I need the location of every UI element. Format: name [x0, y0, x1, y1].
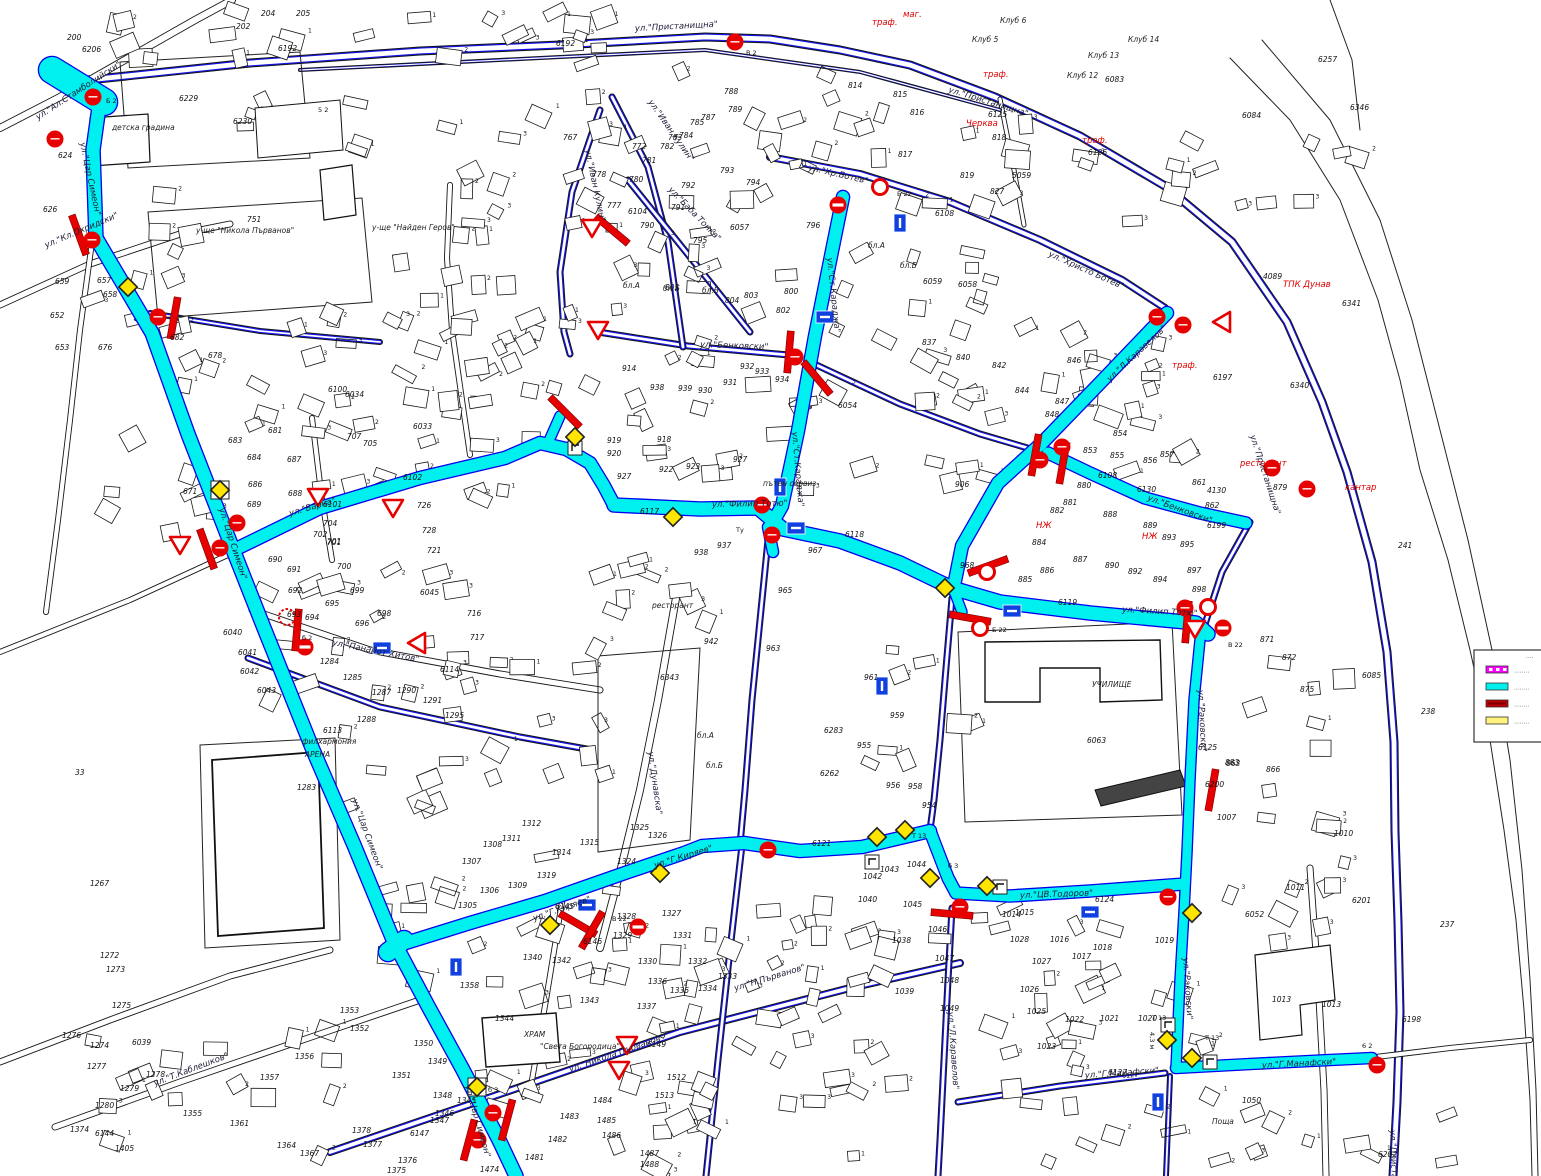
parcel-number: 1482 — [548, 1135, 567, 1144]
house-number: 2 — [487, 275, 491, 282]
building-footprint — [1324, 878, 1340, 894]
house-number: 3 — [811, 1033, 815, 1040]
house-number: 1 — [936, 657, 940, 664]
parcel-number: 892 — [1128, 567, 1143, 576]
building-footprint — [928, 933, 951, 944]
house-number: 3 — [501, 10, 505, 17]
prohibition-sign-icon — [980, 565, 995, 580]
parcel-number: 1314 — [552, 848, 571, 857]
house-number: 3 — [1158, 414, 1162, 421]
parcel-number: 887 — [1073, 555, 1088, 564]
parcel-number: 1405 — [115, 1144, 134, 1153]
one-way-arrow-icon — [1007, 610, 1017, 612]
parcel-number: 6130 — [1137, 485, 1156, 494]
parcel-number: 700 — [337, 562, 352, 571]
house-number: 1 — [649, 556, 653, 563]
parcel-number: 6198 — [1402, 1015, 1421, 1024]
parcel-number: 882 — [1050, 506, 1065, 515]
house-number: 3 — [1287, 934, 1291, 941]
house-number: 3 — [545, 990, 549, 997]
parcel-number: 1352 — [350, 1024, 369, 1033]
house-number: 3 — [827, 1094, 831, 1101]
poi-label: бл.Б — [706, 761, 723, 770]
house-number: 3 — [609, 121, 613, 128]
parcel-number: 1367 — [300, 1149, 319, 1158]
parcel-number: 6346 — [1350, 103, 1369, 112]
building-footprint — [1020, 1098, 1042, 1110]
building-footprint — [251, 1088, 276, 1106]
parcel-number: 6197 — [1213, 373, 1232, 382]
house-number: 1 — [1062, 372, 1066, 379]
parcel-number: 1038 — [892, 936, 911, 945]
parcel-number: 846 — [1067, 356, 1082, 365]
parcel-number: 937 — [717, 541, 732, 550]
parcel-number: 1311 — [502, 834, 521, 843]
house-number: 2 — [678, 355, 682, 362]
parcel-number: 6083 — [1105, 75, 1124, 84]
parcel-number: 842 — [992, 361, 1007, 370]
house-number: 1 — [440, 293, 444, 300]
parcel-number: 837 — [922, 338, 937, 347]
house-number: 3 — [604, 717, 608, 724]
sign-annotation-text: 6127 — [1122, 1071, 1139, 1080]
parcel-number: 695 — [325, 599, 340, 608]
poi-label: бл.Б — [900, 261, 917, 270]
parcel-number: 1327 — [662, 909, 681, 918]
parcel-number: 1358 — [460, 981, 479, 990]
building-footprint — [908, 299, 926, 316]
house-number: 2 — [909, 1076, 913, 1083]
house-number: 1 — [306, 1027, 310, 1034]
parcel-number: 1279 — [120, 1084, 139, 1093]
parcel-number: 857 — [1160, 450, 1175, 459]
house-number: 3 — [1342, 877, 1346, 884]
house-number: 3 — [799, 1094, 803, 1101]
building-footprint — [805, 966, 818, 983]
building-footprint — [1122, 215, 1142, 227]
parcel-number: 657 — [97, 276, 112, 285]
building-footprint — [946, 713, 972, 734]
house-number: 3 — [406, 311, 410, 318]
house-number: 1 — [517, 1069, 521, 1076]
building-footprint — [420, 293, 438, 307]
building-footprint — [886, 645, 899, 654]
parcel-number: 705 — [363, 439, 378, 448]
house-number: 3 — [721, 465, 725, 472]
parcel-number: 6041 — [238, 648, 257, 657]
parcel-number: 861 — [1192, 478, 1206, 487]
house-number: 2 — [1343, 818, 1347, 825]
parcel-number: 855 — [1110, 451, 1125, 460]
parcel-number: 6206 — [82, 45, 101, 54]
poi-label-red: траф. — [1082, 136, 1108, 146]
house-number: 3 — [816, 482, 820, 489]
house-number: 3 — [819, 398, 823, 405]
house-number: 2 — [631, 589, 635, 596]
house-number: 3 — [674, 1166, 678, 1173]
building-footprint — [149, 223, 170, 240]
parcel-number: 931 — [723, 378, 737, 387]
parcel-number: 653 — [55, 343, 70, 352]
house-number: 1 — [949, 197, 953, 204]
parcel-number: 6200 — [1205, 780, 1224, 789]
house-number: 3 — [536, 34, 540, 41]
parcel-number: 1039 — [895, 987, 914, 996]
parcel-number: 1486 — [602, 1131, 621, 1140]
parcel-number: 1361 — [230, 1119, 249, 1128]
house-number: 2 — [1159, 362, 1163, 369]
house-number: 2 — [343, 1083, 347, 1090]
parcel-number: 1307 — [462, 857, 481, 866]
house-number: 2 — [781, 960, 785, 967]
parcel-number: 1315 — [580, 838, 599, 847]
building-footprint — [366, 765, 386, 775]
parcel-number: 688 — [288, 489, 303, 498]
parcel-number: 1287 — [372, 688, 391, 697]
house-number: 3 — [1316, 194, 1320, 201]
parcel-number: 1290 — [397, 686, 416, 695]
parcel-number: 1274 — [90, 1041, 109, 1050]
poi-label: филхармония — [302, 737, 357, 746]
house-number: 1 — [304, 321, 308, 328]
house-number: 2 — [872, 1081, 876, 1088]
parcel-number: 693 — [287, 610, 302, 619]
house-number: 1 — [1328, 715, 1332, 722]
parcel-number: 6057 — [730, 223, 749, 232]
parcel-number: 678 — [208, 351, 223, 360]
building-footprint — [557, 995, 571, 1009]
cadastral-map-canvas[interactable]: 1121113323111121132122211133231212213113… — [0, 0, 1541, 1176]
building-footprint — [104, 486, 120, 498]
poi-label-red: траф. — [872, 18, 898, 28]
house-number: 1 — [624, 124, 628, 131]
parcel-number: 884 — [1032, 538, 1047, 547]
building-footprint — [586, 89, 601, 105]
parcel-number: 1045 — [903, 900, 922, 909]
parcel-number: 800 — [784, 287, 799, 296]
building-footprint — [168, 1092, 182, 1106]
one-way-arrow-icon — [899, 218, 901, 228]
parcel-number: 687 — [287, 455, 302, 464]
house-number: 1 — [512, 483, 516, 490]
building-footprint — [406, 883, 426, 903]
house-number: 2 — [343, 312, 347, 319]
parcel-number: 814 — [848, 81, 863, 90]
large-building — [320, 165, 356, 220]
house-number: 3 — [1157, 383, 1161, 390]
parcel-number: 658 — [103, 290, 118, 299]
parcel-number: 789 — [728, 105, 743, 114]
house-number: 1 — [619, 222, 623, 229]
parcel-number: 1010 — [1334, 829, 1353, 838]
house-number: 1 — [514, 736, 518, 743]
house-number: 3 — [634, 262, 638, 269]
one-way-arrow-icon — [1085, 911, 1095, 913]
house-number: 2 — [354, 724, 358, 731]
parcel-number: 894 — [1153, 575, 1168, 584]
house-number: 3 — [1261, 1148, 1265, 1155]
house-number: 3 — [1168, 334, 1172, 341]
building-footprint — [1062, 1040, 1076, 1049]
house-number: 3 — [1144, 215, 1148, 222]
building-footprint — [1063, 1097, 1079, 1116]
parcel-number: 1280 — [95, 1101, 114, 1110]
house-number: 3 — [608, 967, 612, 974]
parcel-number: 920 — [607, 449, 622, 458]
parcel-number: 704 — [323, 519, 338, 528]
poi-label: УЧИЛИЩЕ — [1092, 680, 1132, 689]
building-footprint — [392, 253, 409, 272]
parcel-number: 968 — [960, 561, 975, 570]
parcel-number: 885 — [1018, 575, 1033, 584]
parcel-number: 698 — [377, 609, 392, 618]
parcel-number: 702 — [313, 530, 328, 539]
building-footprint — [638, 263, 650, 276]
parcel-number: 690 — [268, 555, 283, 564]
house-number: 1 — [1035, 325, 1039, 332]
parcel-number: 5059 — [1012, 171, 1031, 180]
parcel-number: 795 — [693, 236, 708, 245]
one-way-arrow-icon — [791, 527, 801, 529]
sign-annotation-text: В 22 — [1228, 641, 1243, 649]
house-number: 1 — [332, 481, 336, 488]
stop-sign-text-mark — [1058, 446, 1067, 448]
parcel-number: 788 — [724, 87, 739, 96]
house-number: 1 — [1317, 1133, 1321, 1140]
parcel-number: 1512 — [667, 1073, 686, 1082]
parcel-number: 6192 — [278, 44, 297, 53]
house-number: 3 — [119, 1097, 123, 1104]
house-number: 3 — [1343, 810, 1347, 817]
parcel-number: 1484 — [593, 1096, 612, 1105]
stop-sign-text-mark — [216, 547, 225, 549]
parcel-number: 204 — [261, 9, 276, 18]
house-number: 1 — [246, 49, 250, 56]
parcel-number: 1023 — [1037, 1042, 1056, 1051]
street-name-label: ул."Пристанищна" — [1387, 1129, 1400, 1176]
house-number: 1 — [262, 421, 266, 428]
parcel-number: 6063 — [1087, 736, 1106, 745]
parcel-number: 1364 — [277, 1141, 296, 1150]
building-footprint — [439, 756, 463, 766]
building-footprint — [451, 318, 472, 335]
large-building — [212, 752, 324, 936]
legend-swatch-3 — [1486, 717, 1508, 724]
building-footprint — [756, 903, 781, 918]
building-footprint — [669, 583, 692, 599]
parcel-number: 624 — [58, 151, 73, 160]
sign-annotation-text: б 3 — [488, 1086, 498, 1094]
house-number: 3 — [475, 679, 479, 686]
parcel-number: 792 — [681, 181, 696, 190]
parcel-number: 1288 — [357, 715, 376, 724]
parcel-number: 1351 — [392, 1071, 411, 1080]
parcel-number: 6084 — [1242, 111, 1261, 120]
legend-item-label: ........ — [1514, 668, 1529, 675]
house-number: 3 — [667, 446, 671, 453]
parcel-number: 1042 — [863, 872, 882, 881]
building-footprint — [565, 216, 582, 231]
parcel-number: 6126 — [1088, 148, 1107, 157]
parcel-number: 238 — [1421, 707, 1436, 716]
building-footprint — [143, 52, 158, 65]
sign-annotation-text: 5 2 — [318, 106, 328, 114]
map-viewport[interactable]: 1121113323111121132122211133231212213113… — [0, 0, 1541, 1176]
parcel-number: 1295 — [445, 711, 464, 720]
parcel-number: 1273 — [106, 965, 125, 974]
parcel-number: 780 — [629, 175, 644, 184]
sign-annotation-text: 4,3 м — [1148, 1032, 1156, 1049]
parcel-number: 1047 — [935, 954, 954, 963]
parcel-number: 963 — [766, 644, 781, 653]
parcel-number: 6283 — [824, 726, 843, 735]
parcel-number: 1356 — [295, 1052, 314, 1061]
parcel-number: 626 — [43, 205, 58, 214]
building-footprint — [1310, 740, 1331, 756]
house-number: 3 — [1034, 114, 1038, 121]
sign-annotation-text: Т 13 — [1204, 1034, 1219, 1042]
house-number: 1 — [1101, 985, 1105, 992]
parcel-number: 938 — [694, 548, 709, 557]
building-footprint — [496, 276, 516, 296]
house-number: 1 — [888, 148, 892, 155]
sign-annotation-text: Ту — [735, 526, 744, 534]
parcel-number: 1306 — [480, 886, 499, 895]
parcel-number: 965 — [778, 586, 793, 595]
stop-sign-text-mark — [489, 1112, 498, 1114]
poi-label: бл.А — [868, 241, 885, 250]
one-way-arrow-icon — [881, 681, 883, 691]
house-number: 2 — [665, 566, 669, 573]
house-number: 1 — [308, 28, 312, 35]
parcel-number: 782 — [660, 142, 675, 151]
parcel-number: 1342 — [552, 956, 571, 965]
parcel-number: 6043 — [257, 686, 276, 695]
stop-sign-text-mark — [1036, 459, 1045, 461]
house-number: 1 — [980, 462, 984, 469]
parcel-number: 6146 — [583, 937, 602, 946]
parcel-number: 881 — [1063, 498, 1077, 507]
poi-label: Клуб 14 — [1128, 35, 1159, 44]
house-number: 3 — [943, 347, 947, 354]
house-number: 3 — [578, 318, 582, 325]
building-footprint — [730, 191, 754, 209]
parcel-number: 1308 — [483, 840, 502, 849]
parcel-number: 6119 — [1058, 598, 1077, 607]
house-number: 3 — [449, 570, 453, 577]
building-footprint — [701, 465, 720, 483]
legend-swatch-dash — [1496, 668, 1500, 671]
parcel-number: 1015 — [1015, 908, 1034, 917]
poi-label: у-ще "Никола Първанов" — [195, 226, 294, 235]
stop-sign-text-mark — [51, 138, 60, 140]
building-footprint — [878, 746, 898, 756]
house-number: 3 — [537, 1085, 541, 1092]
house-number: 1 — [707, 350, 711, 357]
sign-annotation-text: Т 13 — [911, 832, 926, 840]
parcel-number: 967 — [808, 546, 823, 555]
parcel-number: 895 — [1180, 540, 1195, 549]
parcel-number: 1326 — [648, 831, 667, 840]
stop-sign-text-mark — [1164, 896, 1173, 898]
parcel-number: 1305 — [458, 901, 477, 910]
house-number: 1 — [612, 769, 616, 776]
parcel-number: 1019 — [1155, 936, 1174, 945]
house-number: 2 — [504, 343, 508, 350]
parcel-number: 6257 — [1318, 55, 1337, 64]
parcel-number: 890 — [1105, 561, 1120, 570]
parcel-number: 872 — [1282, 653, 1297, 662]
parcel-number: 1022 — [1065, 1015, 1084, 1024]
house-number: 1 — [1196, 980, 1200, 987]
parcel-number: 6229 — [179, 94, 198, 103]
parcel-number: 692 — [288, 586, 303, 595]
parcel-number: 930 — [698, 386, 713, 395]
building-footprint — [475, 226, 489, 245]
house-number: 1 — [436, 438, 440, 445]
house-number: 3 — [645, 1070, 649, 1077]
parcel-number: 886 — [1040, 566, 1055, 575]
building-footprint — [915, 392, 935, 411]
stop-sign-text-mark — [1153, 316, 1162, 318]
sign-annotation-text: В 2 — [746, 49, 757, 57]
house-number: 1 — [720, 609, 724, 616]
building-footprint — [688, 244, 699, 262]
parcel-number: 1291 — [423, 696, 442, 705]
parcel-number: 1378 — [352, 1126, 371, 1135]
house-number: 1 — [536, 659, 540, 666]
house-number: 1 — [928, 298, 932, 305]
building-footprint — [627, 415, 641, 426]
house-number: 1 — [401, 923, 405, 930]
parcel-number: 1007 — [1217, 813, 1236, 822]
parcel-number: 932 — [740, 362, 755, 371]
sign-annotation-text: б 3 — [948, 862, 958, 870]
house-number: 2 — [402, 569, 406, 576]
poi-label: Клуб 12 — [1067, 71, 1098, 80]
parcel-number: 777 — [607, 201, 622, 210]
house-number: 3 — [1330, 919, 1334, 926]
stop-sign-text-mark — [768, 534, 777, 536]
parcel-number: 1026 — [1020, 985, 1039, 994]
building-footprint — [1071, 1065, 1084, 1077]
building-footprint — [470, 438, 494, 452]
building-footprint — [1262, 783, 1277, 798]
parcel-number: 1513 — [655, 1091, 674, 1100]
parcel-number: 1334 — [698, 984, 717, 993]
building-footprint — [660, 944, 681, 965]
house-number: 3 — [1018, 1048, 1022, 1055]
parcel-number: 1350 — [414, 1039, 433, 1048]
building-footprint — [461, 218, 485, 228]
prohibition-sign-icon — [1201, 600, 1216, 615]
parcel-number: 1343 — [580, 996, 599, 1005]
parcel-number: 6144 — [95, 1129, 114, 1138]
parcel-number: 844 — [1015, 386, 1030, 395]
house-number: 2 — [974, 712, 978, 719]
house-number: 2 — [907, 669, 911, 676]
parcel-number: 919 — [607, 436, 622, 445]
house-number: 2 — [178, 185, 182, 192]
poi-label: "Света Богородица" — [540, 1042, 620, 1051]
poi-label-red: Черква — [966, 119, 998, 129]
house-number: 3 — [367, 478, 371, 485]
parcel-number: 205 — [296, 9, 311, 18]
street-name-label: ул."Филип Тотю" — [711, 499, 788, 510]
parcel-number: 787 — [701, 113, 716, 122]
parcel-number: 1474 — [480, 1165, 499, 1174]
parcel-number: 1348 — [433, 1091, 452, 1100]
